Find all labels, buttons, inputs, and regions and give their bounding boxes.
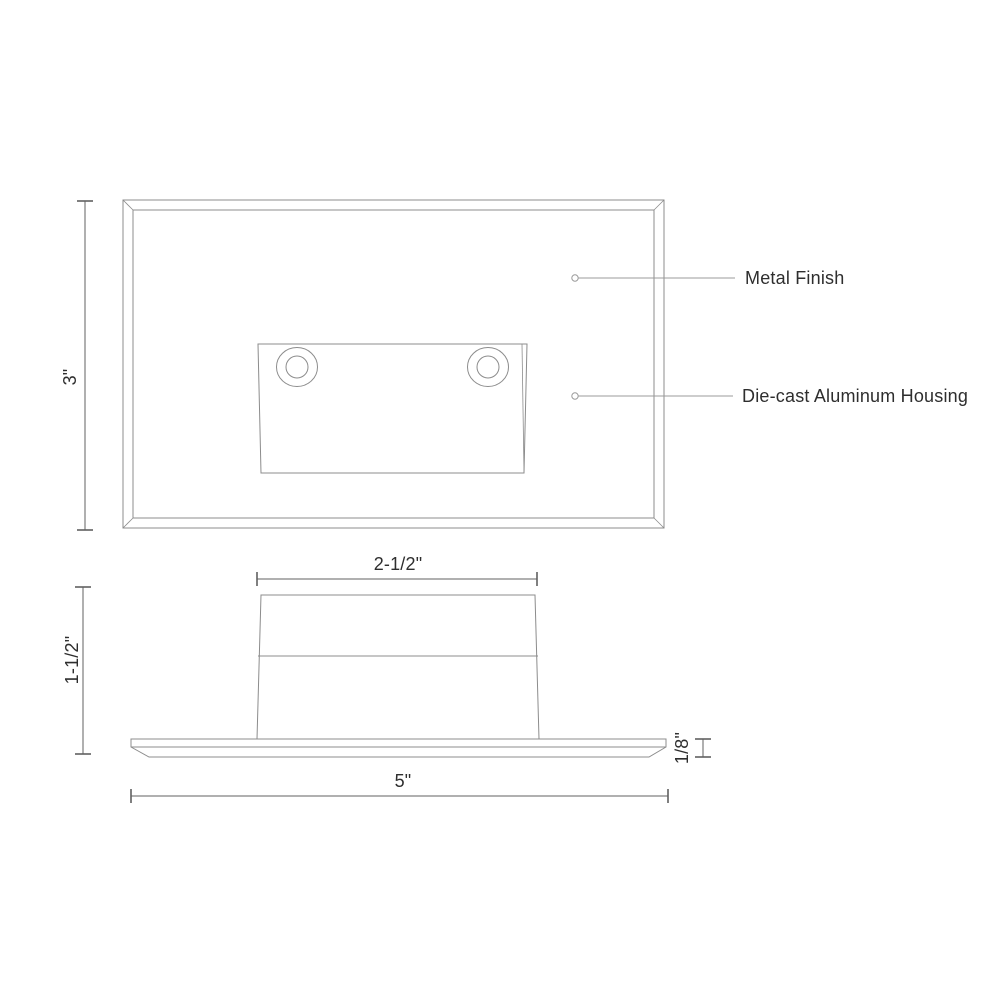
dim-label-front-height: 3" [60, 369, 80, 386]
spec-sheet-page: Metal Finish Die-cast Aluminum Housing 3… [0, 0, 1000, 1000]
dim-label-side-height: 1-1/2" [62, 636, 82, 685]
dimension-front-height: 3" [60, 201, 93, 530]
housing-body [257, 595, 539, 739]
dim-label-faceplate-thickness: 1/8" [672, 732, 692, 764]
screw-right [468, 348, 509, 387]
screw-right-outer-circle [468, 348, 509, 387]
callout-die-cast-housing: Die-cast Aluminum Housing [572, 386, 968, 406]
screw-left-inner-circle [286, 356, 308, 378]
lens-window [258, 344, 527, 473]
dim-label-overall-width: 5" [395, 771, 412, 791]
screw-left-outer-circle [277, 348, 318, 387]
leader-dot-icon [572, 393, 578, 399]
bevel-miter-top-right [654, 200, 664, 210]
dimension-side-height: 1-1/2" [62, 587, 91, 754]
faceplate-bevel-inner-edge [133, 210, 654, 518]
bevel-miter-top-left [123, 200, 133, 210]
screw-left [277, 348, 318, 387]
leader-dot-icon [572, 275, 578, 281]
faceplate-outer-edge [123, 200, 664, 528]
callout-label-metal-finish: Metal Finish [745, 268, 844, 288]
screw-right-inner-circle [477, 356, 499, 378]
bevel-miter-bottom-right [654, 518, 664, 528]
bevel-miter-bottom-left [123, 518, 133, 528]
side-view [131, 595, 666, 757]
callout-label-die-cast-housing: Die-cast Aluminum Housing [742, 386, 968, 406]
lens-window-right-bevel [522, 344, 524, 473]
faceplate-profile [131, 739, 666, 757]
callout-metal-finish: Metal Finish [572, 268, 845, 288]
dimension-housing-top-width: 2-1/2" [257, 554, 537, 586]
dimension-faceplate-thickness: 1/8" [672, 732, 711, 764]
dim-label-housing-top-width: 2-1/2" [374, 554, 423, 574]
dimension-overall-width: 5" [131, 771, 668, 803]
technical-drawing: Metal Finish Die-cast Aluminum Housing 3… [0, 0, 1000, 1000]
front-view [123, 200, 664, 528]
